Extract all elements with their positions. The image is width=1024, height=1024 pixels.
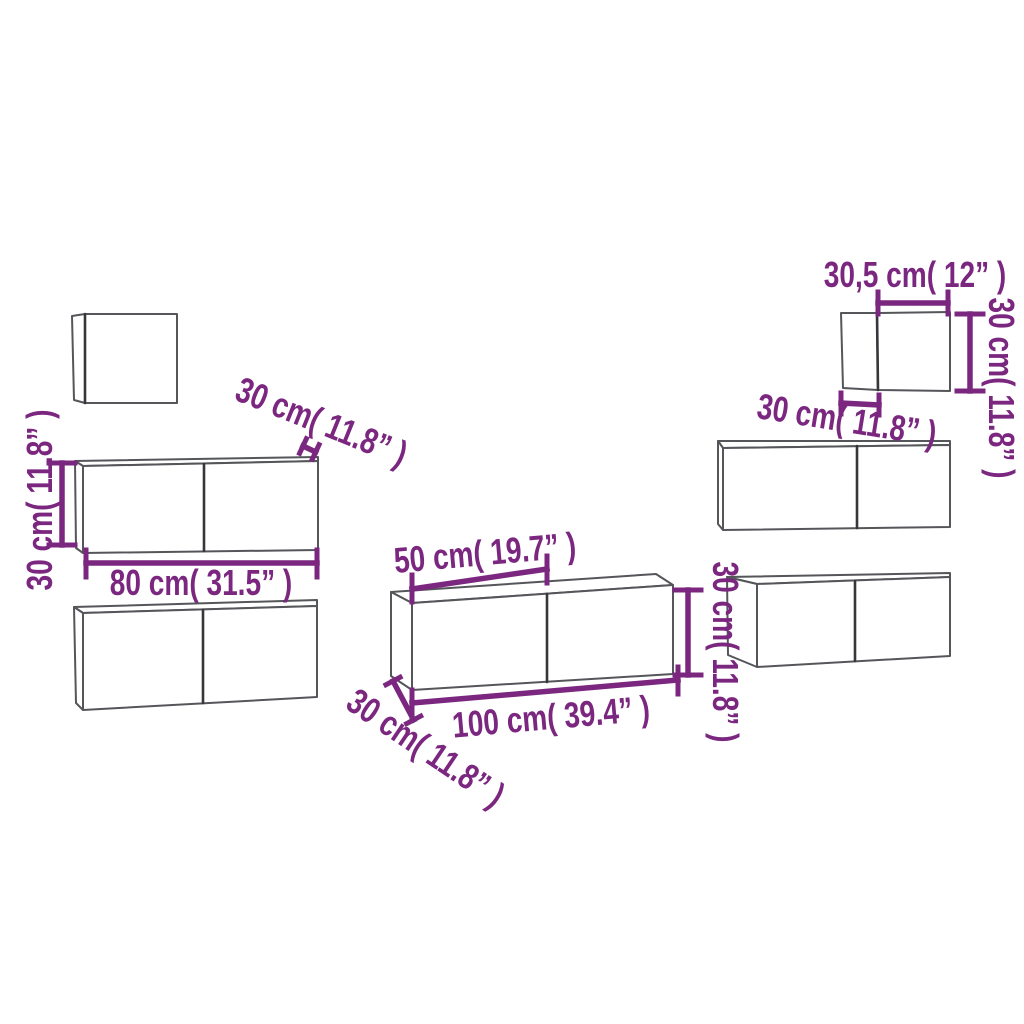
cabinet-right-middle (718, 441, 950, 530)
cabinet-front-face (83, 606, 317, 710)
dim-line-small-cabinet-width (878, 292, 948, 314)
dim-line-small-cabinet-height (957, 314, 983, 391)
label-long-cabinet-door-width: 50 cm( 19.7” ) (392, 525, 577, 581)
label-long-cabinet-height: 30 cm( 11.8” ) (705, 562, 745, 743)
cabinet-100-center (391, 574, 673, 690)
cabinet-front-face (83, 461, 318, 553)
dim-line-long-cabinet-height (675, 590, 701, 675)
cabinet-edge (877, 313, 878, 390)
cabinet-80-upper-left (75, 457, 318, 553)
cabinet-front-face (877, 312, 950, 391)
cabinet-30-top-right (841, 312, 950, 391)
cabinet-side-face (72, 314, 85, 403)
cabinet-front-face (757, 577, 950, 667)
furniture-dimension-diagram: 30 cm( 11.8” ) 80 cm( 31.5” ) 30 cm( 11.… (0, 0, 1024, 1024)
cabinet-square-top-left (72, 314, 177, 403)
cabinet-drawings (72, 312, 950, 710)
cabinet-front-face (723, 445, 950, 530)
cabinet-side-face (841, 313, 878, 390)
label-small-cabinet-width: 30,5 cm( 12” ) (824, 255, 1007, 295)
label-left-cabinet-height: 30 cm( 11.8” ) (20, 410, 60, 591)
cabinet-80-lower-left (74, 600, 317, 710)
cabinet-side-face (74, 607, 83, 710)
cabinet-front-face (412, 585, 673, 690)
diagram-canvas: 30 cm( 11.8” ) 80 cm( 31.5” ) 30 cm( 11.… (0, 0, 1024, 1024)
cabinet-front-face (85, 314, 177, 403)
cabinet-right-lower (727, 573, 950, 667)
label-left-cabinet-width: 80 cm( 31.5” ) (110, 563, 293, 603)
cabinet-side-face (75, 461, 83, 553)
dim-line-left-cabinet-depth (300, 439, 319, 459)
label-small-cabinet-height: 30 cm( 11.8” ) (981, 298, 1021, 479)
